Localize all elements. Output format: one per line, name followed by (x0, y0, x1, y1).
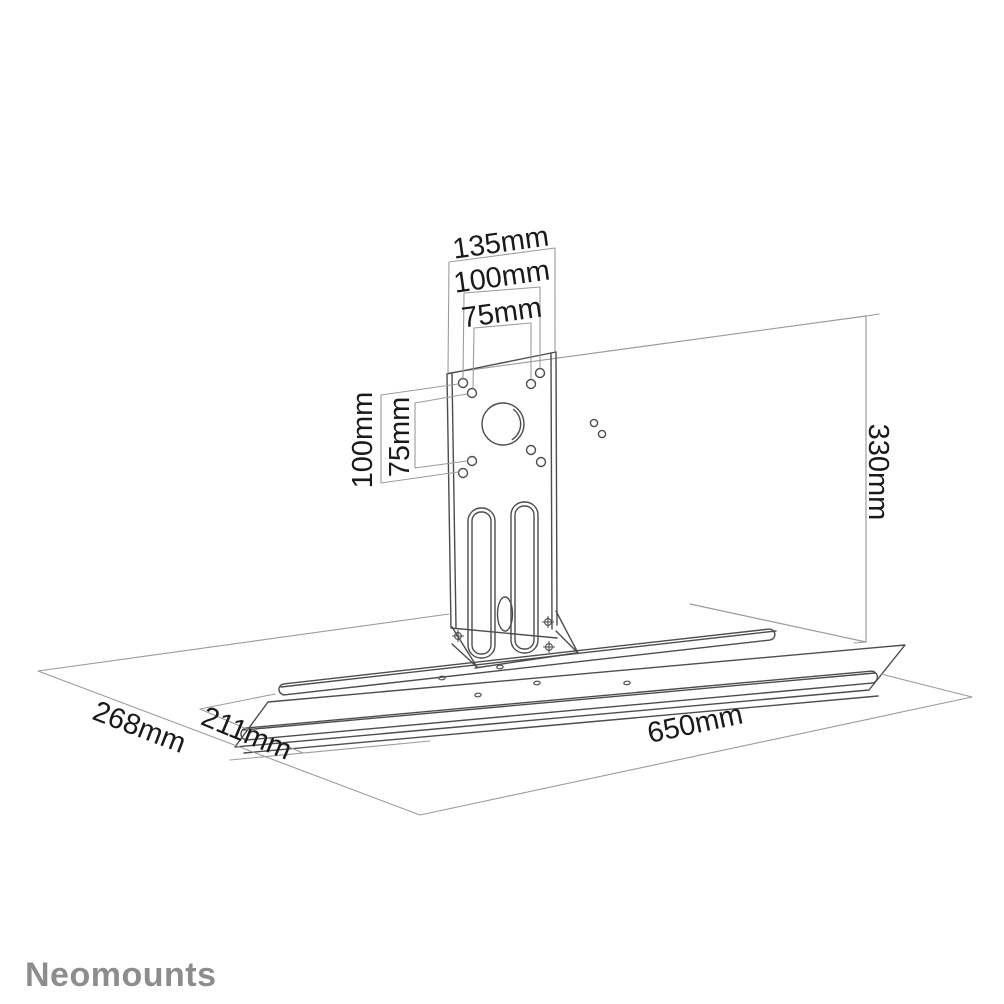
dim-vesa-height-100-label: 100mm (347, 392, 379, 489)
shelf-front-fold-bottom (244, 696, 878, 753)
shelf-back-lip (278, 628, 776, 695)
shelf-mount-holes (439, 665, 631, 697)
brand-logo: Neomounts (25, 956, 217, 994)
shelf-front-lip (240, 671, 878, 753)
dim-vesa-height-75-label: 75mm (384, 397, 416, 478)
dim-lines-bottom-footprint (38, 614, 972, 815)
dim-panel-height-label: 330mm (862, 424, 894, 521)
dimension-drawing: 135mm 100mm 75mm 100mm 75mm 330mm 268mm … (0, 0, 1004, 1004)
panel-bottom-edge (690, 604, 866, 642)
dim-depth-shelf-label: 211mm (197, 701, 297, 767)
technical-drawing-page: 135mm 100mm 75mm 100mm 75mm 330mm 268mm … (0, 0, 1004, 1004)
vesa-holes (459, 369, 546, 478)
slot-oval-hole (498, 597, 513, 631)
dimension-labels: 135mm 100mm 75mm 100mm 75mm 330mm 268mm … (88, 221, 894, 767)
bracket-plate (447, 352, 606, 668)
cable-hole (482, 403, 524, 445)
keyboard-shelf (235, 628, 905, 753)
dim-depth-total-label: 268mm (88, 695, 190, 760)
panel-side-holes (590, 419, 605, 437)
